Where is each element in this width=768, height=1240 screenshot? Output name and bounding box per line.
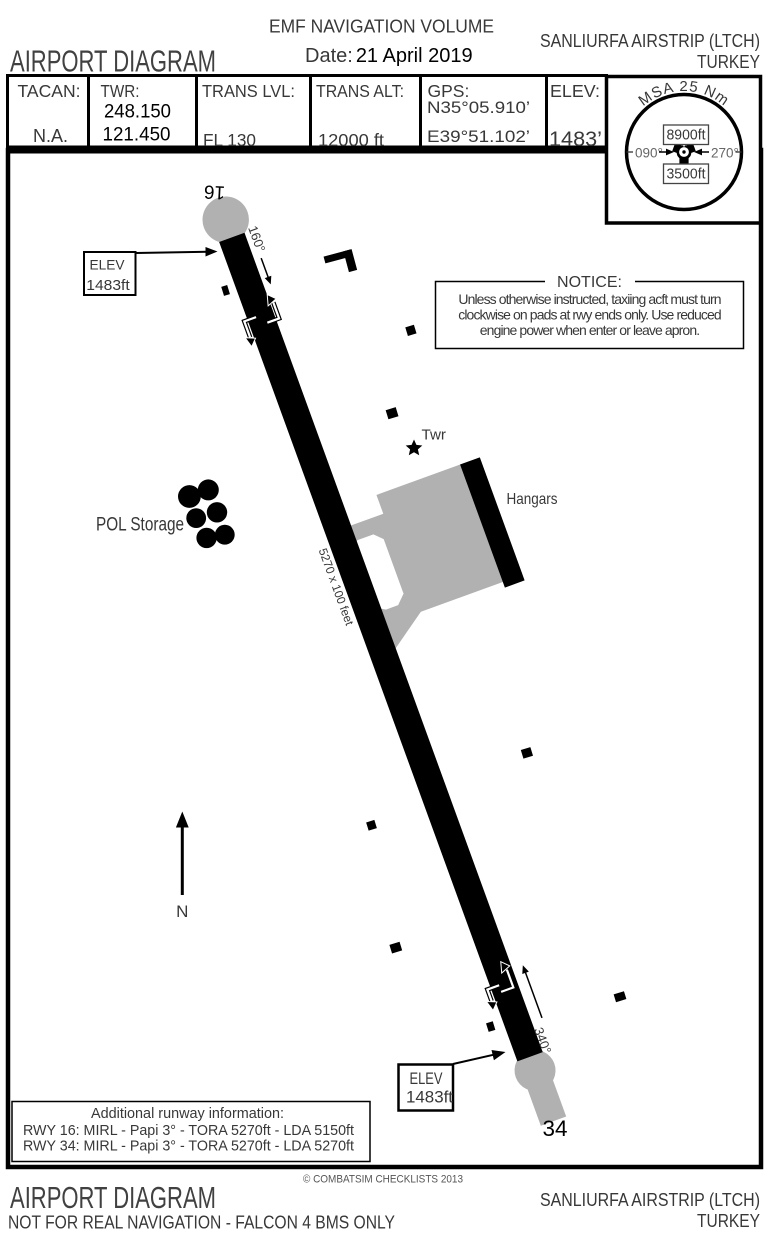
svg-text:engine power when enter or lea: engine power when enter or leave apron. (480, 322, 699, 338)
svg-text:AIRPORT DIAGRAM: AIRPORT DIAGRAM (10, 44, 216, 79)
svg-text:NOTICE:: NOTICE: (557, 274, 622, 291)
svg-text:clockwise on pads at rwy ends: clockwise on pads at rwy ends only. Use … (458, 307, 721, 323)
svg-text:TURKEY: TURKEY (697, 52, 760, 72)
svg-text:Unless otherwise instructed, t: Unless otherwise instructed, taxiing acf… (458, 291, 720, 307)
svg-text:GPS:: GPS: (428, 81, 470, 101)
svg-text:090°: 090° (635, 146, 663, 161)
svg-text:248.150: 248.150 (104, 101, 171, 123)
svg-text:FL 130: FL 130 (203, 130, 256, 150)
svg-text:EMF NAVIGATION VOLUME: EMF NAVIGATION VOLUME (269, 17, 494, 37)
svg-text:1483ft: 1483ft (86, 278, 130, 294)
svg-text:34: 34 (542, 1116, 567, 1141)
svg-text:RWY 34: MIRL - Papi 3° - TORA: RWY 34: MIRL - Papi 3° - TORA 5270ft - L… (23, 1138, 355, 1155)
svg-text:SANLIURFA AIRSTRIP (LTCH): SANLIURFA AIRSTRIP (LTCH) (540, 1190, 760, 1210)
svg-text:© COMBATSIM CHECKLISTS 2013: © COMBATSIM CHECKLISTS 2013 (303, 1174, 463, 1186)
svg-text:N35°05.910’: N35°05.910’ (427, 99, 530, 117)
svg-text:Date:21 April 2019: Date:21 April 2019 (305, 45, 473, 67)
svg-text:POL Storage: POL Storage (96, 515, 184, 536)
svg-text:8900ft: 8900ft (667, 128, 706, 144)
svg-text:TWR:: TWR: (101, 81, 140, 101)
svg-text:ELEV: ELEV (410, 1070, 443, 1088)
svg-text:ELEV: ELEV (90, 257, 126, 273)
svg-text:1483’: 1483’ (549, 128, 602, 151)
svg-text:Additional runway information:: Additional runway information: (91, 1105, 284, 1122)
svg-text:E39°51.102’: E39°51.102’ (427, 128, 530, 146)
svg-text:NOT FOR REAL NAVIGATION - FALC: NOT FOR REAL NAVIGATION - FALCON 4 BMS O… (8, 1213, 395, 1233)
svg-text:Hangars: Hangars (507, 491, 558, 508)
svg-text:N.A.: N.A. (33, 126, 68, 146)
svg-text:TACAN:: TACAN: (18, 81, 81, 101)
svg-text:SANLIURFA AIRSTRIP (LTCH): SANLIURFA AIRSTRIP (LTCH) (540, 31, 760, 51)
svg-text:ELEV:: ELEV: (550, 81, 600, 101)
svg-text:121.450: 121.450 (103, 124, 171, 146)
svg-text:Twr: Twr (422, 427, 447, 444)
svg-text:TRANS ALT:: TRANS ALT: (316, 81, 404, 101)
svg-text:TURKEY: TURKEY (697, 1211, 760, 1231)
svg-text:3500ft: 3500ft (667, 167, 706, 183)
svg-text:270°: 270° (711, 146, 739, 161)
svg-text:RWY 16: MIRL - Papi 3° - TORA: RWY 16: MIRL - Papi 3° - TORA 5270ft - L… (23, 1122, 355, 1139)
svg-text:12000 ft: 12000 ft (318, 130, 384, 150)
svg-text:AIRPORT DIAGRAM: AIRPORT DIAGRAM (10, 1180, 216, 1215)
svg-text:N: N (176, 902, 188, 921)
svg-text:TRANS LVL:: TRANS LVL: (202, 81, 295, 101)
svg-text:16: 16 (203, 180, 225, 202)
svg-text:1483ft: 1483ft (406, 1089, 453, 1107)
